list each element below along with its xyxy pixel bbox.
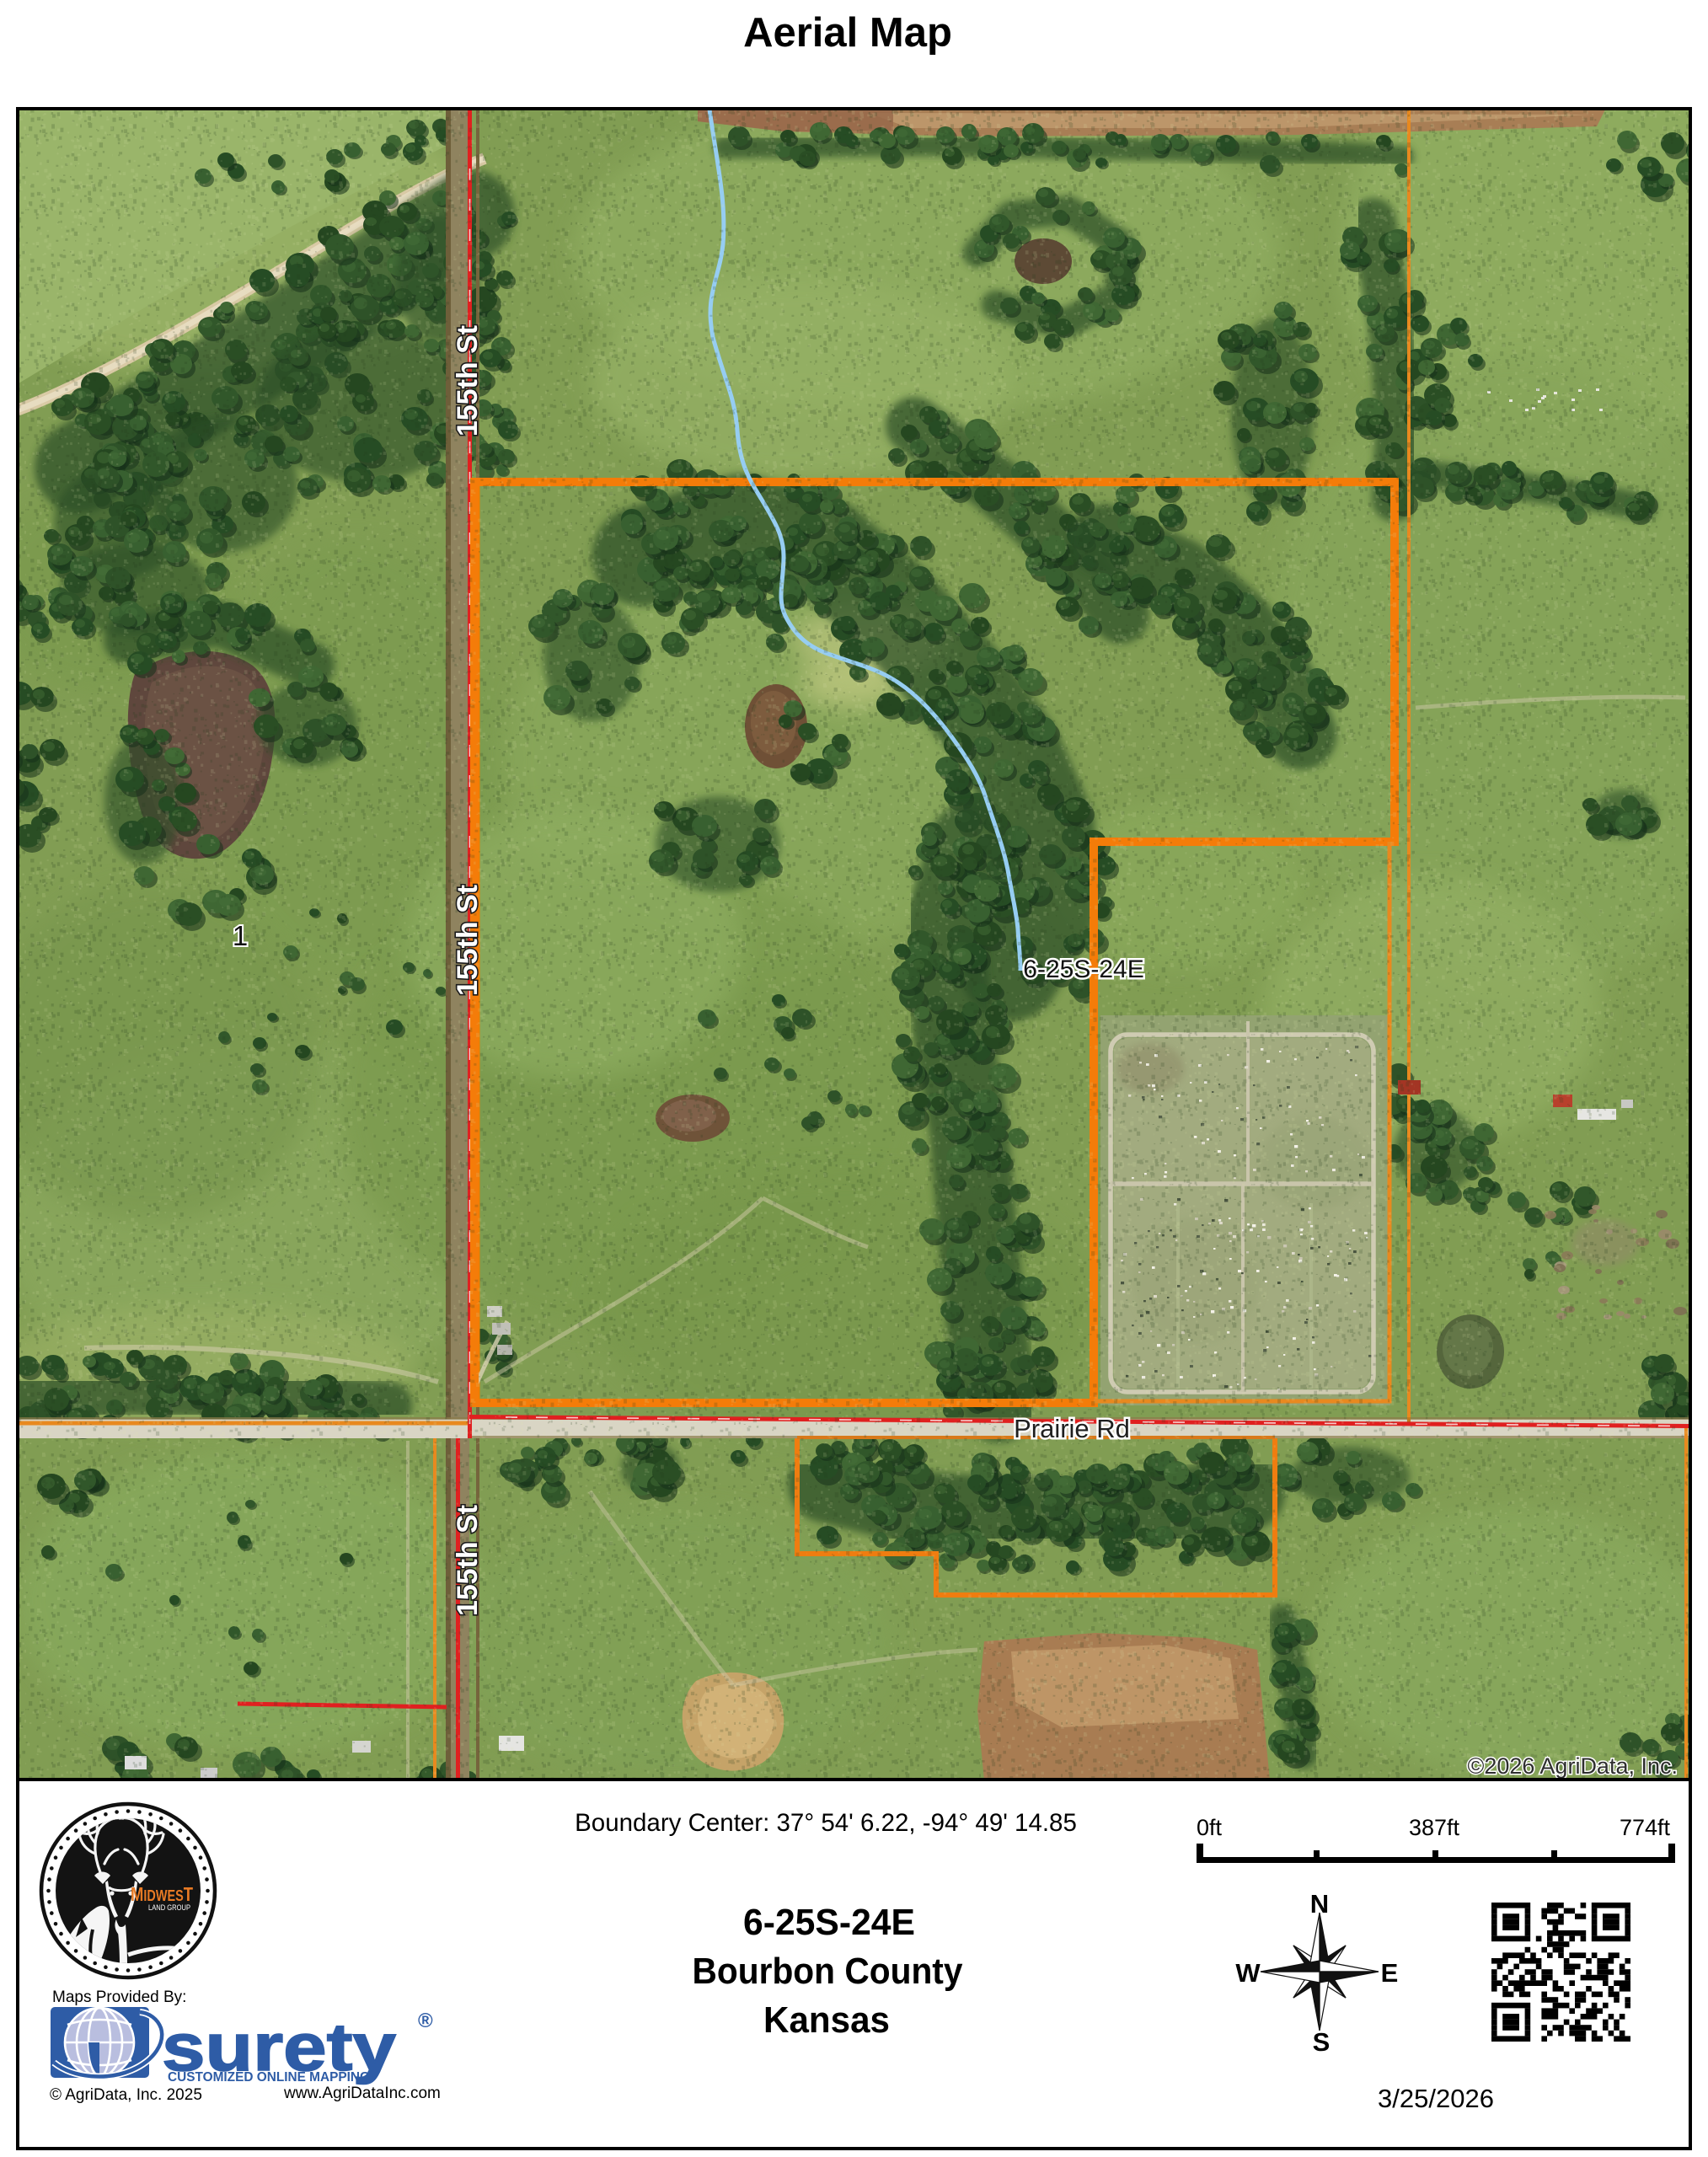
svg-text:®: ®	[418, 2010, 433, 2032]
svg-text:155th St: 155th St	[452, 325, 484, 436]
svg-text:1: 1	[233, 920, 248, 951]
svg-text:6-25S-24E: 6-25S-24E	[1023, 955, 1143, 983]
svg-text:©2026 AgriData, Inc.: ©2026 AgriData, Inc.	[1467, 1753, 1678, 1779]
svg-text:Aerial Map: Aerial Map	[743, 10, 952, 56]
svg-text:Maps Provided By:: Maps Provided By:	[52, 1988, 186, 2006]
svg-text:Bourbon County: Bourbon County	[693, 1951, 963, 1992]
svg-text:Kansas: Kansas	[763, 1999, 890, 2041]
svg-text:Boundary Center: 37° 54' 6.22,: Boundary Center: 37° 54' 6.22, -94° 49' …	[575, 1809, 1077, 1837]
svg-text:0ft: 0ft	[1197, 1815, 1223, 1840]
svg-text:N: N	[1310, 1889, 1329, 1919]
svg-text:155th St: 155th St	[452, 1505, 484, 1616]
svg-text:774ft: 774ft	[1620, 1815, 1671, 1840]
svg-text:LAND GROUP: LAND GROUP	[148, 1903, 190, 1912]
svg-text:W: W	[1235, 1958, 1261, 1988]
svg-text:www.AgriDataInc.com: www.AgriDataInc.com	[283, 2085, 441, 2102]
svg-text:CUSTOMIZED ONLINE MAPPING: CUSTOMIZED ONLINE MAPPING	[168, 2070, 370, 2085]
svg-text:E: E	[1381, 1958, 1399, 1988]
svg-text:3/25/2026: 3/25/2026	[1378, 2084, 1494, 2113]
svg-text:Prairie Rd: Prairie Rd	[1014, 1414, 1130, 1443]
svg-text:© AgriData, Inc. 2025: © AgriData, Inc. 2025	[50, 2086, 202, 2104]
svg-text:6-25S-24E: 6-25S-24E	[743, 1902, 915, 1943]
svg-text:S: S	[1313, 2027, 1331, 2057]
svg-text:387ft: 387ft	[1409, 1815, 1460, 1840]
svg-text:155th St: 155th St	[452, 885, 484, 996]
